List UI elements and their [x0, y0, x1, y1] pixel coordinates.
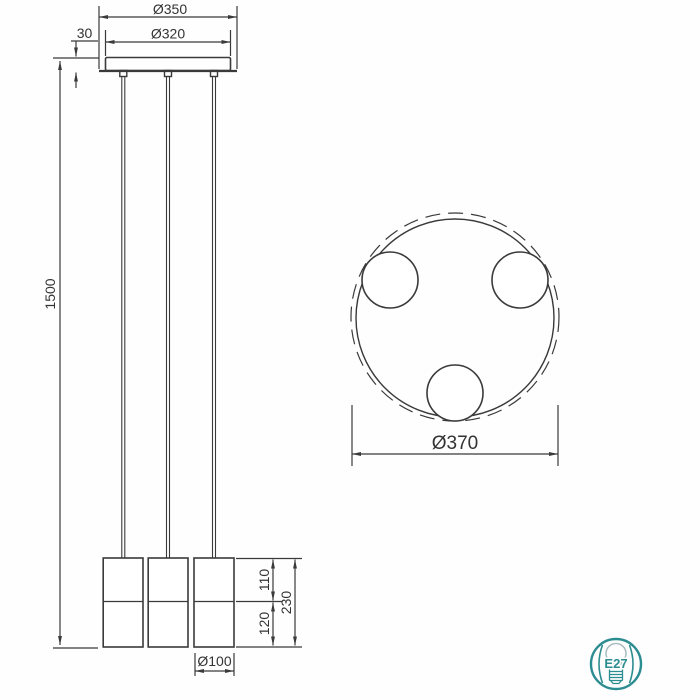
dimension-shade-diameter: Ø100	[195, 653, 234, 676]
label-socket-type: E27	[604, 656, 627, 671]
e27-badge: E27	[591, 639, 641, 689]
lamp-shade	[148, 558, 188, 647]
shade-outline	[103, 558, 143, 647]
label-canopy-outer-diameter: Ø350	[153, 1, 187, 17]
label-shade-upper-height: 110	[256, 569, 272, 592]
label-shade-total-height: 230	[278, 591, 294, 615]
lamp-shade	[194, 558, 234, 647]
dimension-canopy-height: 30	[71, 25, 98, 88]
dimension-canopy-inner: Ø320	[106, 26, 231, 57]
shade-circle	[427, 365, 483, 421]
shade-outline	[194, 558, 234, 647]
lamp-shades	[103, 558, 234, 647]
right-paren-arc	[630, 645, 634, 683]
label-canopy-height: 30	[77, 25, 93, 41]
left-paren-arc	[599, 645, 603, 683]
label-shade-diameter: Ø100	[197, 653, 231, 669]
suspension-cord	[167, 77, 170, 559]
shade-circle	[362, 252, 418, 308]
lamp-shade	[103, 558, 143, 647]
top-view: Ø370	[351, 213, 559, 466]
suspension-cord	[213, 77, 216, 559]
suspension-cord	[122, 77, 125, 559]
shade-outline	[148, 558, 188, 647]
shade-circle	[492, 252, 548, 308]
label-suspension-length: 1500	[42, 278, 58, 309]
label-shade-lower-height: 120	[256, 612, 272, 636]
suspension-cords	[122, 77, 216, 559]
canopy	[99, 58, 237, 72]
front-view: Ø350 Ø320 30 1500 110	[42, 1, 302, 676]
technical-drawing: Ø350 Ø320 30 1500 110	[0, 0, 700, 700]
label-overall-diameter: Ø370	[432, 433, 478, 454]
label-canopy-inner-diameter: Ø320	[151, 26, 185, 42]
dimension-suspension-length: 1500	[42, 58, 99, 648]
canopy-body	[106, 58, 231, 71]
dimension-shade-heights: 110 120 230	[236, 559, 302, 648]
